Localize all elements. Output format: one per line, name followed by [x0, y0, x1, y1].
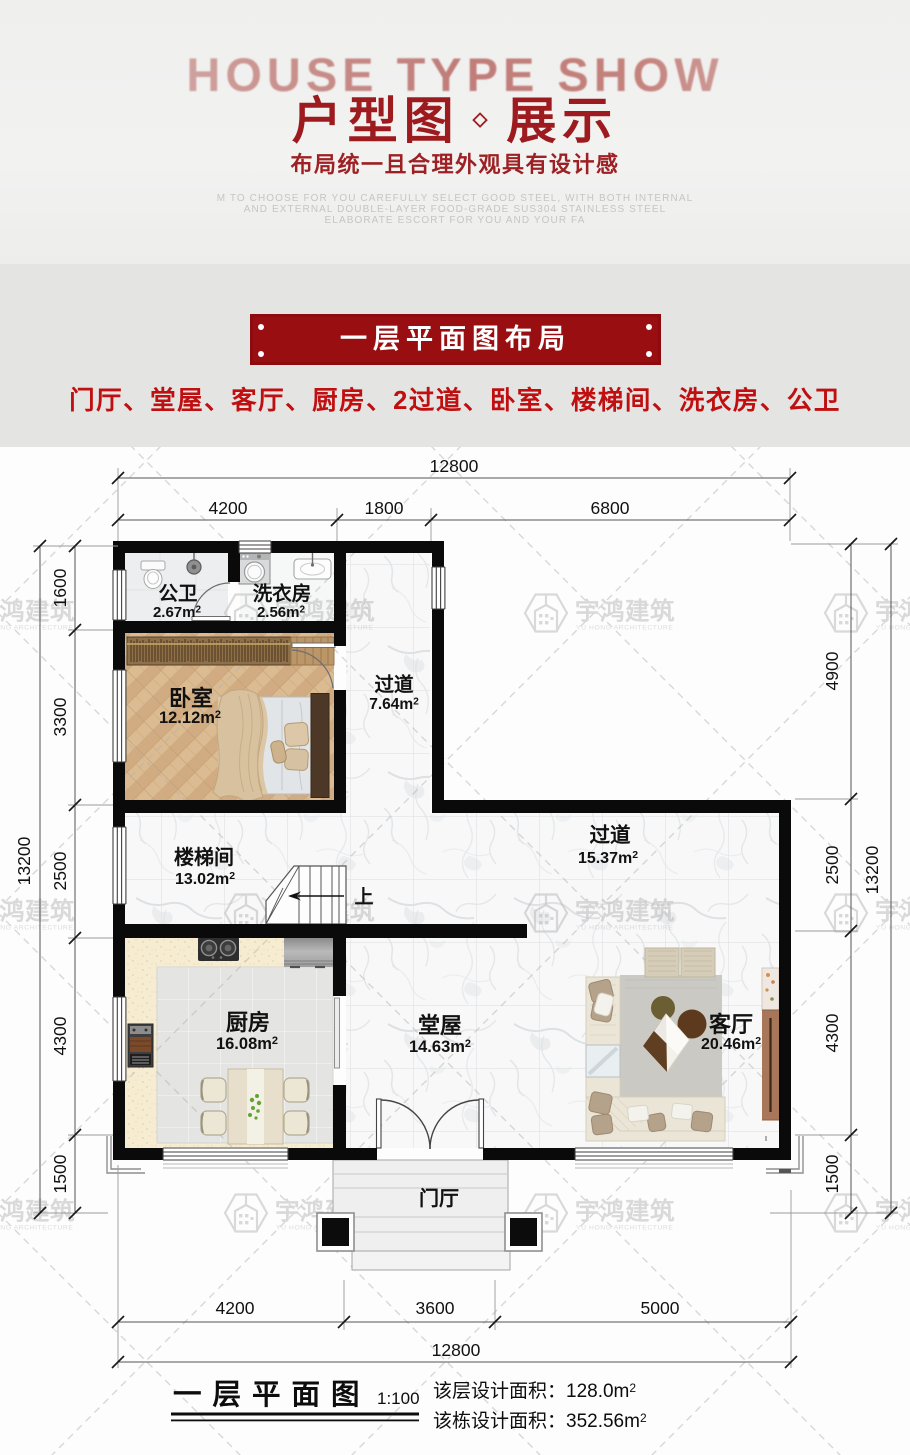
svg-text:14.63m2: 14.63m2 [409, 1038, 471, 1056]
svg-text:该栋设计面积：352.56m2: 该栋设计面积：352.56m2 [433, 1410, 647, 1432]
svg-text:卧室: 卧室 [169, 686, 213, 711]
svg-text:一层平面图: 一层平面图 [173, 1379, 371, 1411]
svg-text:2500: 2500 [822, 845, 842, 884]
svg-text:1600: 1600 [50, 568, 70, 607]
svg-text:2.67m2: 2.67m2 [153, 604, 202, 621]
svg-text:1500: 1500 [50, 1154, 70, 1193]
svg-text:客厅: 客厅 [709, 1012, 753, 1037]
svg-text:堂屋: 堂屋 [418, 1013, 462, 1038]
svg-text:3600: 3600 [416, 1298, 455, 1318]
svg-text:过道: 过道 [590, 823, 631, 847]
svg-text:2.56m2: 2.56m2 [257, 604, 306, 621]
svg-text:7.64m2: 7.64m2 [369, 696, 419, 713]
svg-text:13.02m2: 13.02m2 [175, 870, 235, 888]
svg-text:12.12m2: 12.12m2 [159, 709, 221, 727]
svg-text:5000: 5000 [641, 1298, 680, 1318]
svg-text:1800: 1800 [365, 498, 404, 518]
svg-text:2500: 2500 [50, 851, 70, 890]
svg-text:12800: 12800 [430, 456, 479, 476]
svg-text:15.37m2: 15.37m2 [578, 849, 638, 867]
svg-text:16.08m2: 16.08m2 [216, 1035, 278, 1053]
svg-text:3300: 3300 [50, 697, 70, 736]
svg-text:洗衣房: 洗衣房 [253, 582, 312, 605]
svg-text:1500: 1500 [822, 1154, 842, 1193]
svg-text:4300: 4300 [822, 1013, 842, 1052]
svg-text:公卫: 公卫 [158, 583, 197, 605]
svg-text:1:100: 1:100 [377, 1389, 420, 1408]
svg-text:4900: 4900 [822, 651, 842, 690]
svg-text:4300: 4300 [50, 1016, 70, 1055]
svg-text:楼梯间: 楼梯间 [174, 845, 234, 869]
svg-text:厨房: 厨房 [226, 1010, 270, 1035]
svg-text:6800: 6800 [591, 498, 630, 518]
svg-text:门厅: 门厅 [419, 1186, 459, 1210]
svg-text:12800: 12800 [432, 1340, 481, 1360]
svg-text:该层设计面积：128.0m2: 该层设计面积：128.0m2 [433, 1380, 636, 1402]
svg-text:4200: 4200 [216, 1298, 255, 1318]
svg-text:4200: 4200 [209, 498, 248, 518]
svg-text:过道: 过道 [374, 673, 414, 696]
svg-text:13200: 13200 [14, 836, 34, 885]
svg-text:上: 上 [354, 886, 373, 908]
svg-text:20.46m2: 20.46m2 [701, 1035, 761, 1053]
svg-text:13200: 13200 [862, 845, 882, 894]
